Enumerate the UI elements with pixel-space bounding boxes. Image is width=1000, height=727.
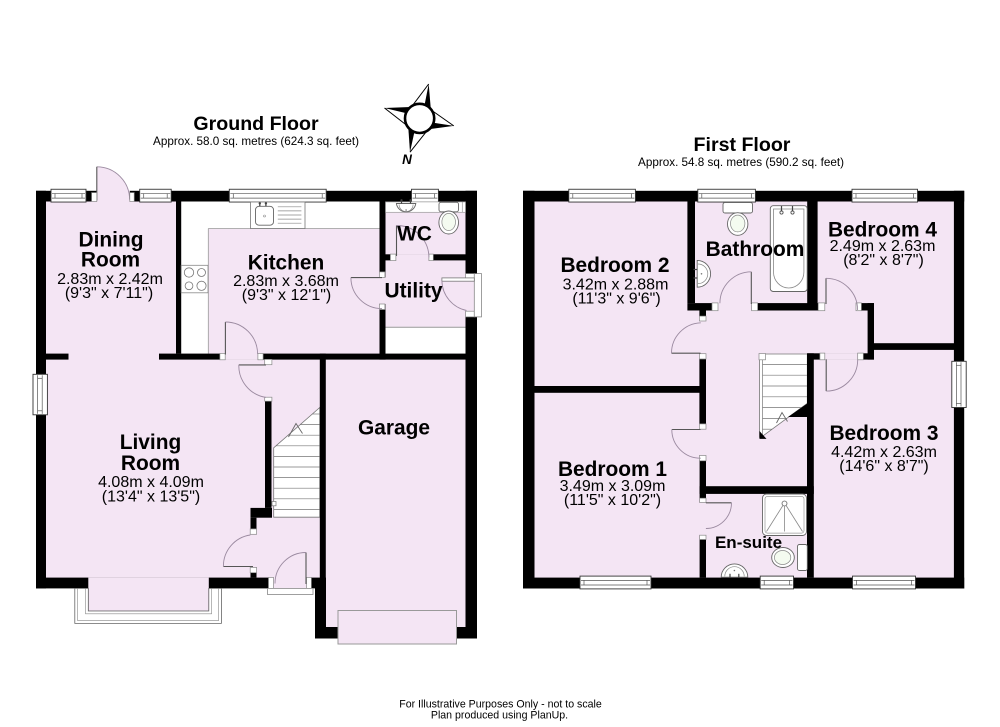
svg-text:WC: WC [397, 222, 432, 245]
svg-text:(11'3" x 9'6"): (11'3" x 9'6") [572, 291, 660, 308]
svg-text:Bathroom: Bathroom [706, 238, 805, 261]
svg-text:Ground Floor: Ground Floor [193, 113, 319, 135]
svg-text:En-suite: En-suite [715, 533, 782, 552]
svg-text:Bedroom 2: Bedroom 2 [560, 254, 669, 277]
svg-text:(8'2" x 8'7"): (8'2" x 8'7") [843, 252, 924, 269]
svg-text:Garage: Garage [358, 416, 430, 439]
svg-text:N: N [402, 152, 412, 167]
svg-text:Approx. 54.8 sq. metres (590.2: Approx. 54.8 sq. metres (590.2 sq. feet) [638, 156, 844, 169]
svg-text:First Floor: First Floor [694, 134, 791, 156]
svg-text:Living: Living [120, 431, 182, 454]
svg-text:Utility: Utility [384, 280, 442, 303]
svg-text:Kitchen: Kitchen [248, 251, 325, 274]
svg-text:Room: Room [81, 249, 140, 272]
svg-text:Room: Room [121, 452, 180, 475]
svg-text:(9'3" x 12'1"): (9'3" x 12'1") [242, 287, 332, 304]
svg-text:Bedroom 3: Bedroom 3 [829, 422, 938, 445]
svg-text:Approx. 58.0 sq. metres (624.3: Approx. 58.0 sq. metres (624.3 sq. feet) [153, 135, 359, 148]
svg-text:Plan produced using PlanUp.: Plan produced using PlanUp. [431, 710, 568, 722]
svg-text:(9'3" x 7'11"): (9'3" x 7'11") [65, 285, 153, 302]
svg-text:(11'5" x 10'2"): (11'5" x 10'2") [564, 492, 661, 509]
svg-text:(13'4" x 13'5"): (13'4" x 13'5") [102, 489, 200, 506]
svg-text:(14'6" x 8'7"): (14'6" x 8'7") [839, 458, 929, 475]
